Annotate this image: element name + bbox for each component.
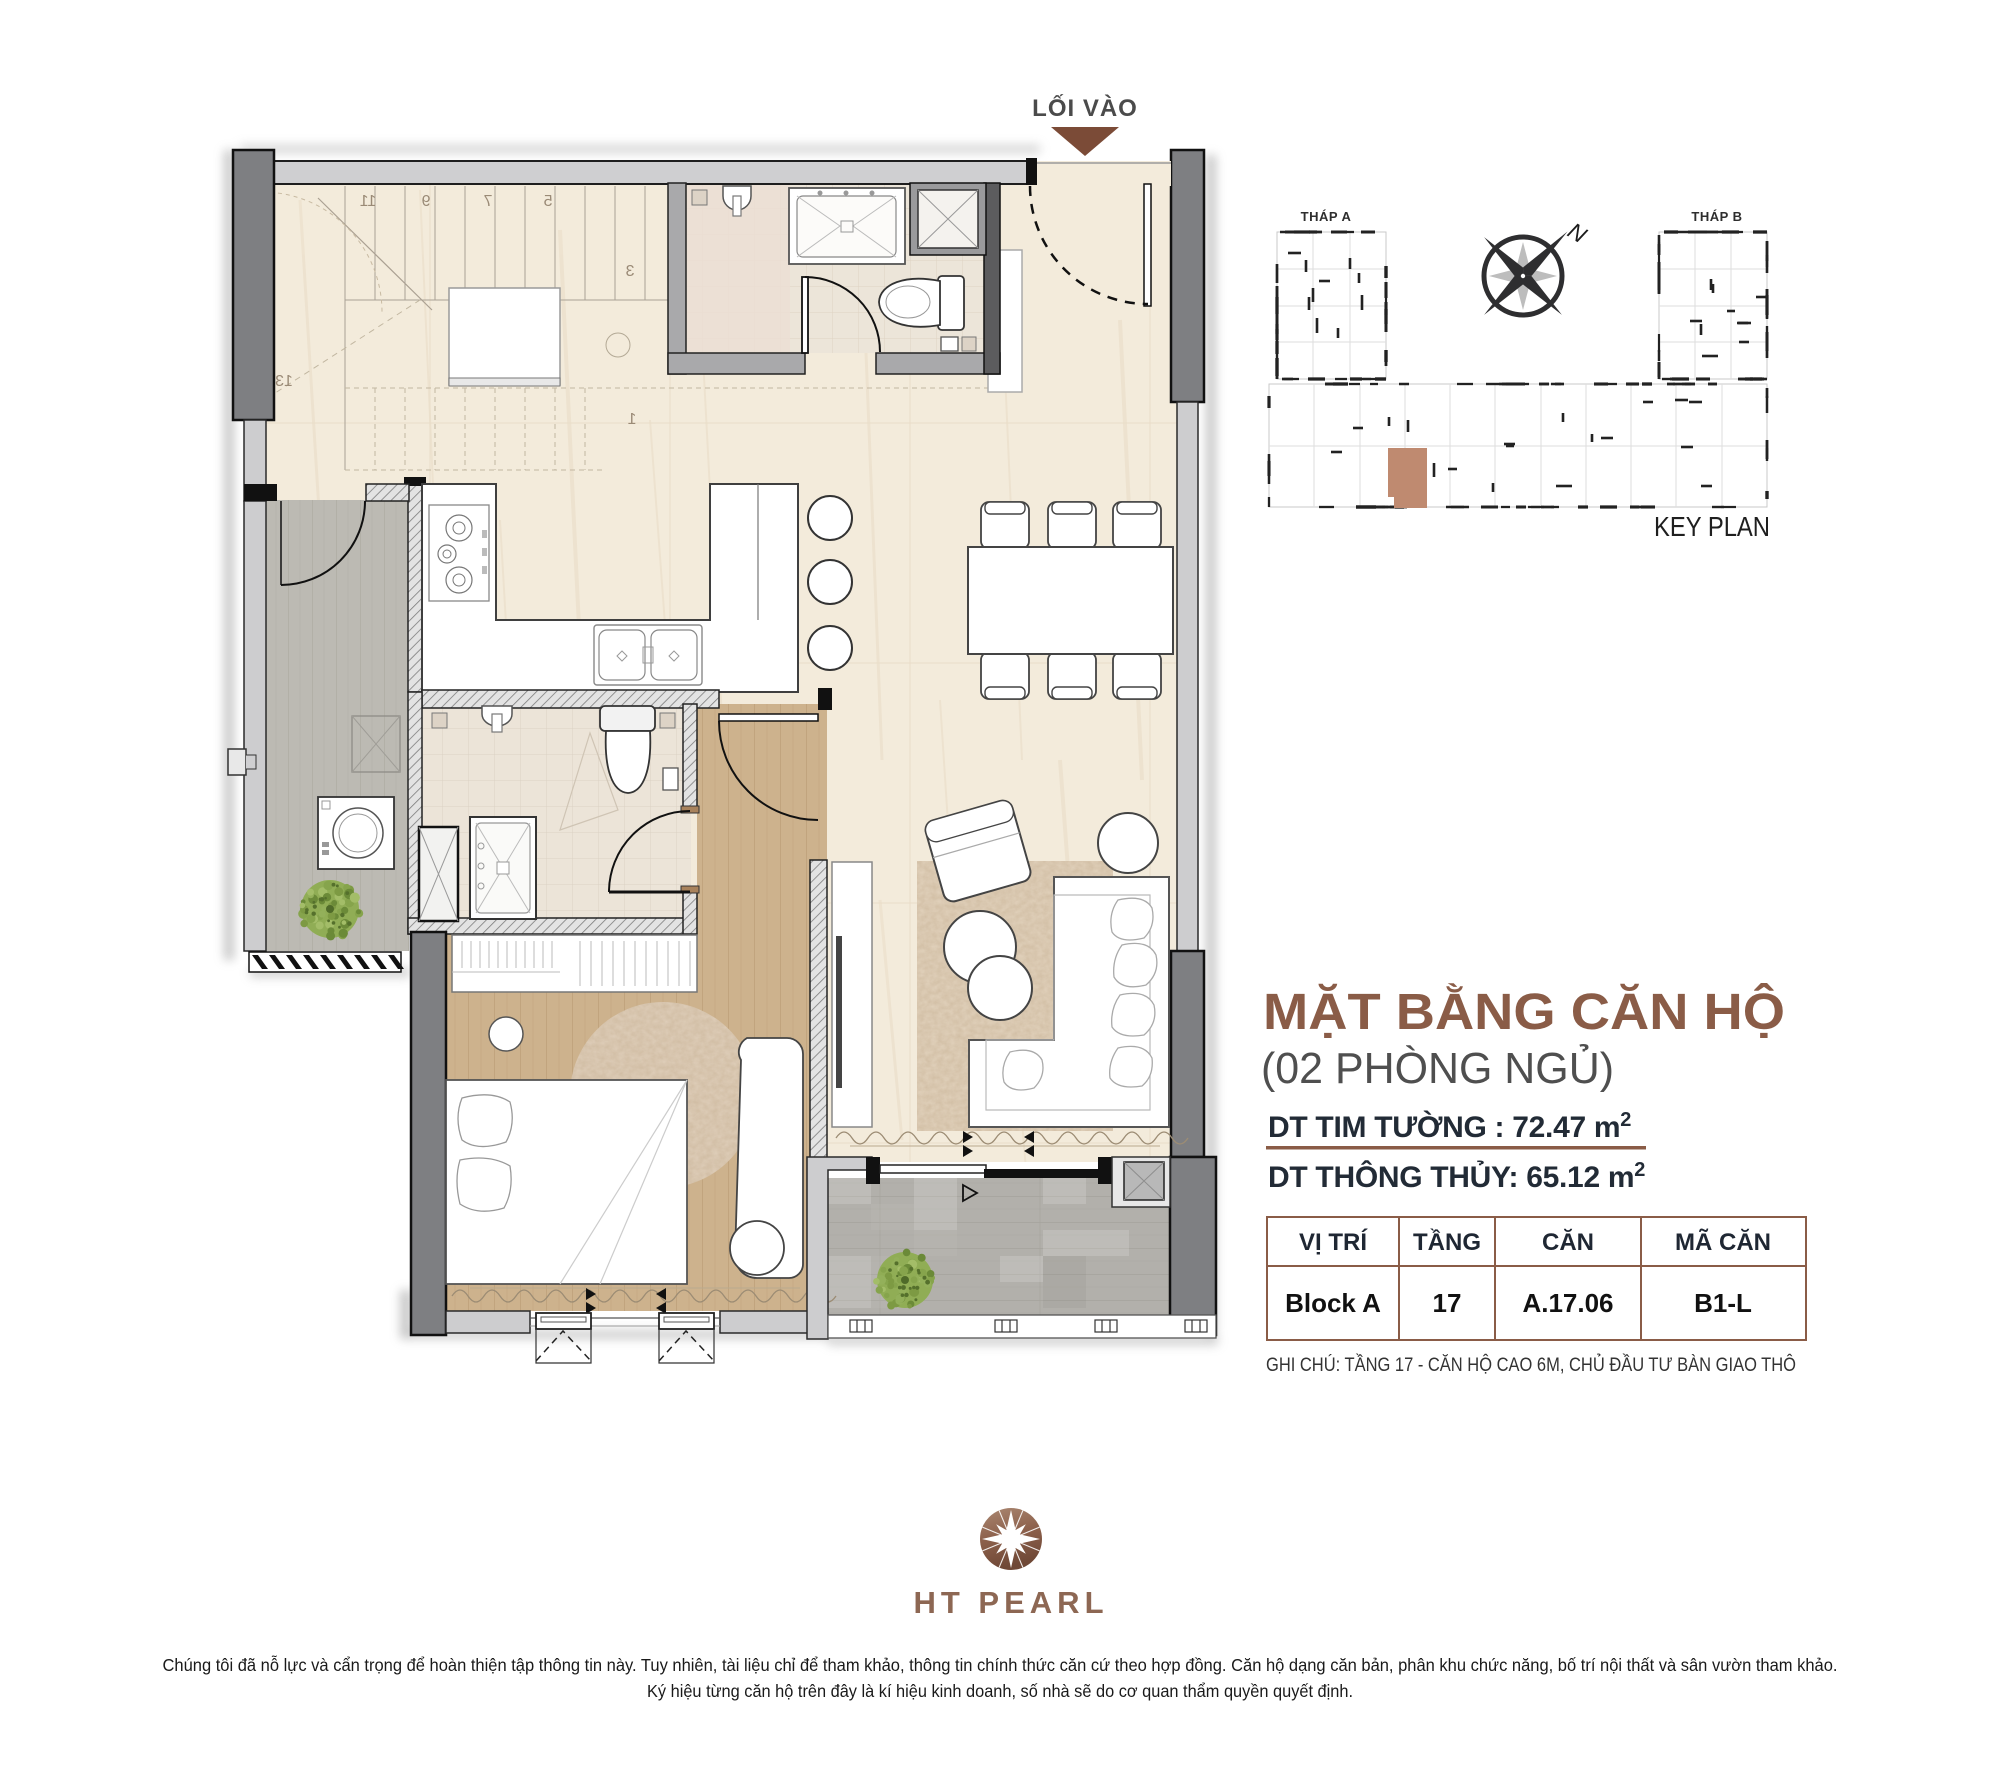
svg-text:N: N [1563, 217, 1591, 248]
svg-text:KEY PLAN: KEY PLAN [1654, 511, 1770, 542]
svg-text:LỐI VÀO: LỐI VÀO [1032, 94, 1138, 122]
svg-text:DT TIM TƯỜNG : 72.47 m2: DT TIM TƯỜNG : 72.47 m2 [1268, 1109, 1631, 1144]
svg-text:CĂN: CĂN [1542, 1228, 1594, 1256]
svg-text:VỊ TRÍ: VỊ TRÍ [1299, 1228, 1368, 1256]
svg-text:7: 7 [483, 193, 492, 210]
svg-text:B1-L: B1-L [1694, 1288, 1752, 1318]
svg-text:MẶT BẰNG CĂN HỘ: MẶT BẰNG CĂN HỘ [1263, 982, 1785, 1040]
svg-text:Chúng tôi đã nỗ lực và cẩn trọ: Chúng tôi đã nỗ lực và cẩn trọng để hoàn… [163, 1654, 1838, 1675]
svg-text:9: 9 [421, 193, 430, 210]
svg-text:(02 PHÒNG NGỦ): (02 PHÒNG NGỦ) [1261, 1042, 1614, 1093]
svg-text:Block A: Block A [1285, 1288, 1381, 1318]
svg-text:11: 11 [360, 193, 377, 210]
svg-text:3: 3 [625, 263, 634, 280]
svg-text:13: 13 [275, 373, 293, 390]
svg-text:5: 5 [543, 193, 552, 210]
svg-text:17: 17 [1433, 1288, 1462, 1318]
svg-text:A.17.06: A.17.06 [1522, 1288, 1613, 1318]
svg-text:1: 1 [627, 411, 636, 428]
svg-text:Ký hiệu từng căn hộ trên đây l: Ký hiệu từng căn hộ trên đây là kí hiệu … [647, 1681, 1353, 1701]
svg-text:HT PEARL: HT PEARL [914, 1585, 1109, 1620]
svg-text:THÁP A: THÁP A [1301, 209, 1352, 224]
svg-text:GHI CHÚ: TẦNG 17 - CĂN HỘ CAO: GHI CHÚ: TẦNG 17 - CĂN HỘ CAO 6M, CHỦ ĐẦ… [1266, 1354, 1796, 1376]
svg-text:THÁP B: THÁP B [1691, 209, 1742, 224]
svg-text:MÃ CĂN: MÃ CĂN [1675, 1228, 1771, 1256]
svg-text:DT THÔNG THỦY: 65.12 m2: DT THÔNG THỦY: 65.12 m2 [1268, 1159, 1645, 1194]
svg-text:TẦNG: TẦNG [1413, 1228, 1481, 1256]
